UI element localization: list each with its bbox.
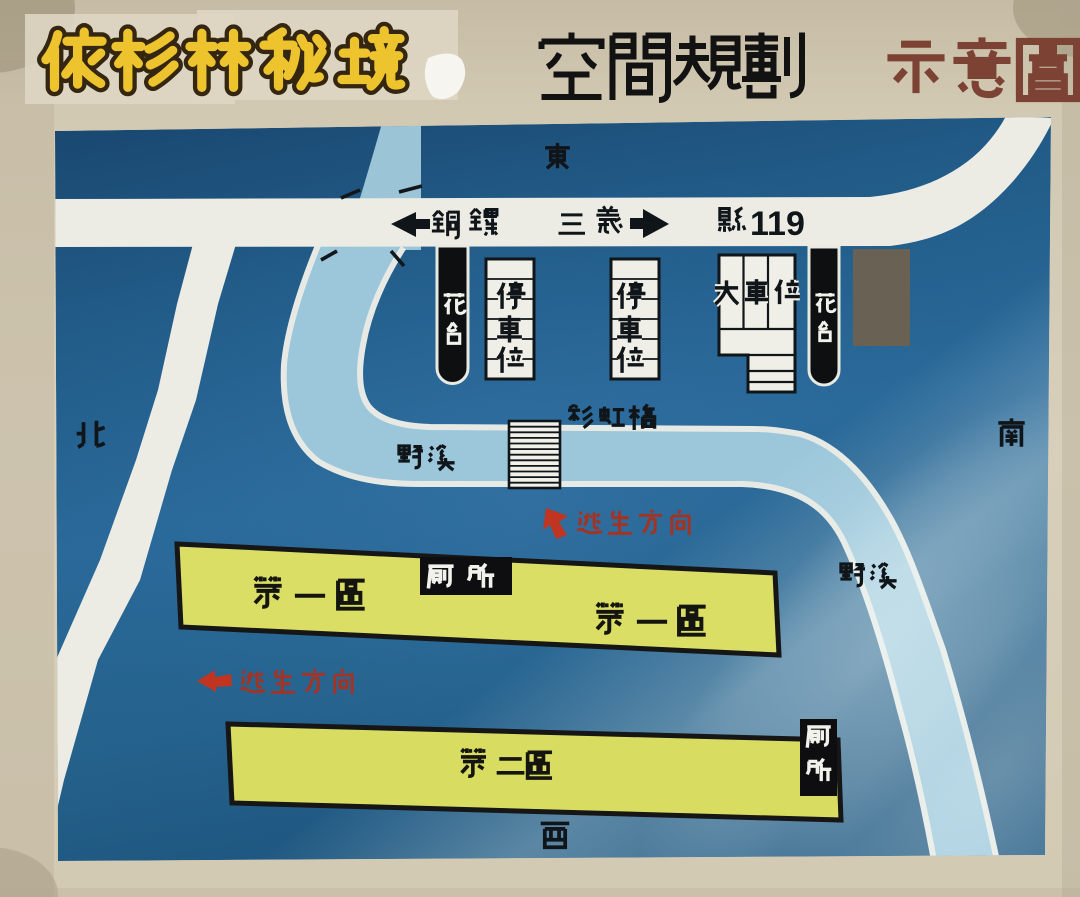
svg-text:119: 119 — [750, 205, 805, 243]
